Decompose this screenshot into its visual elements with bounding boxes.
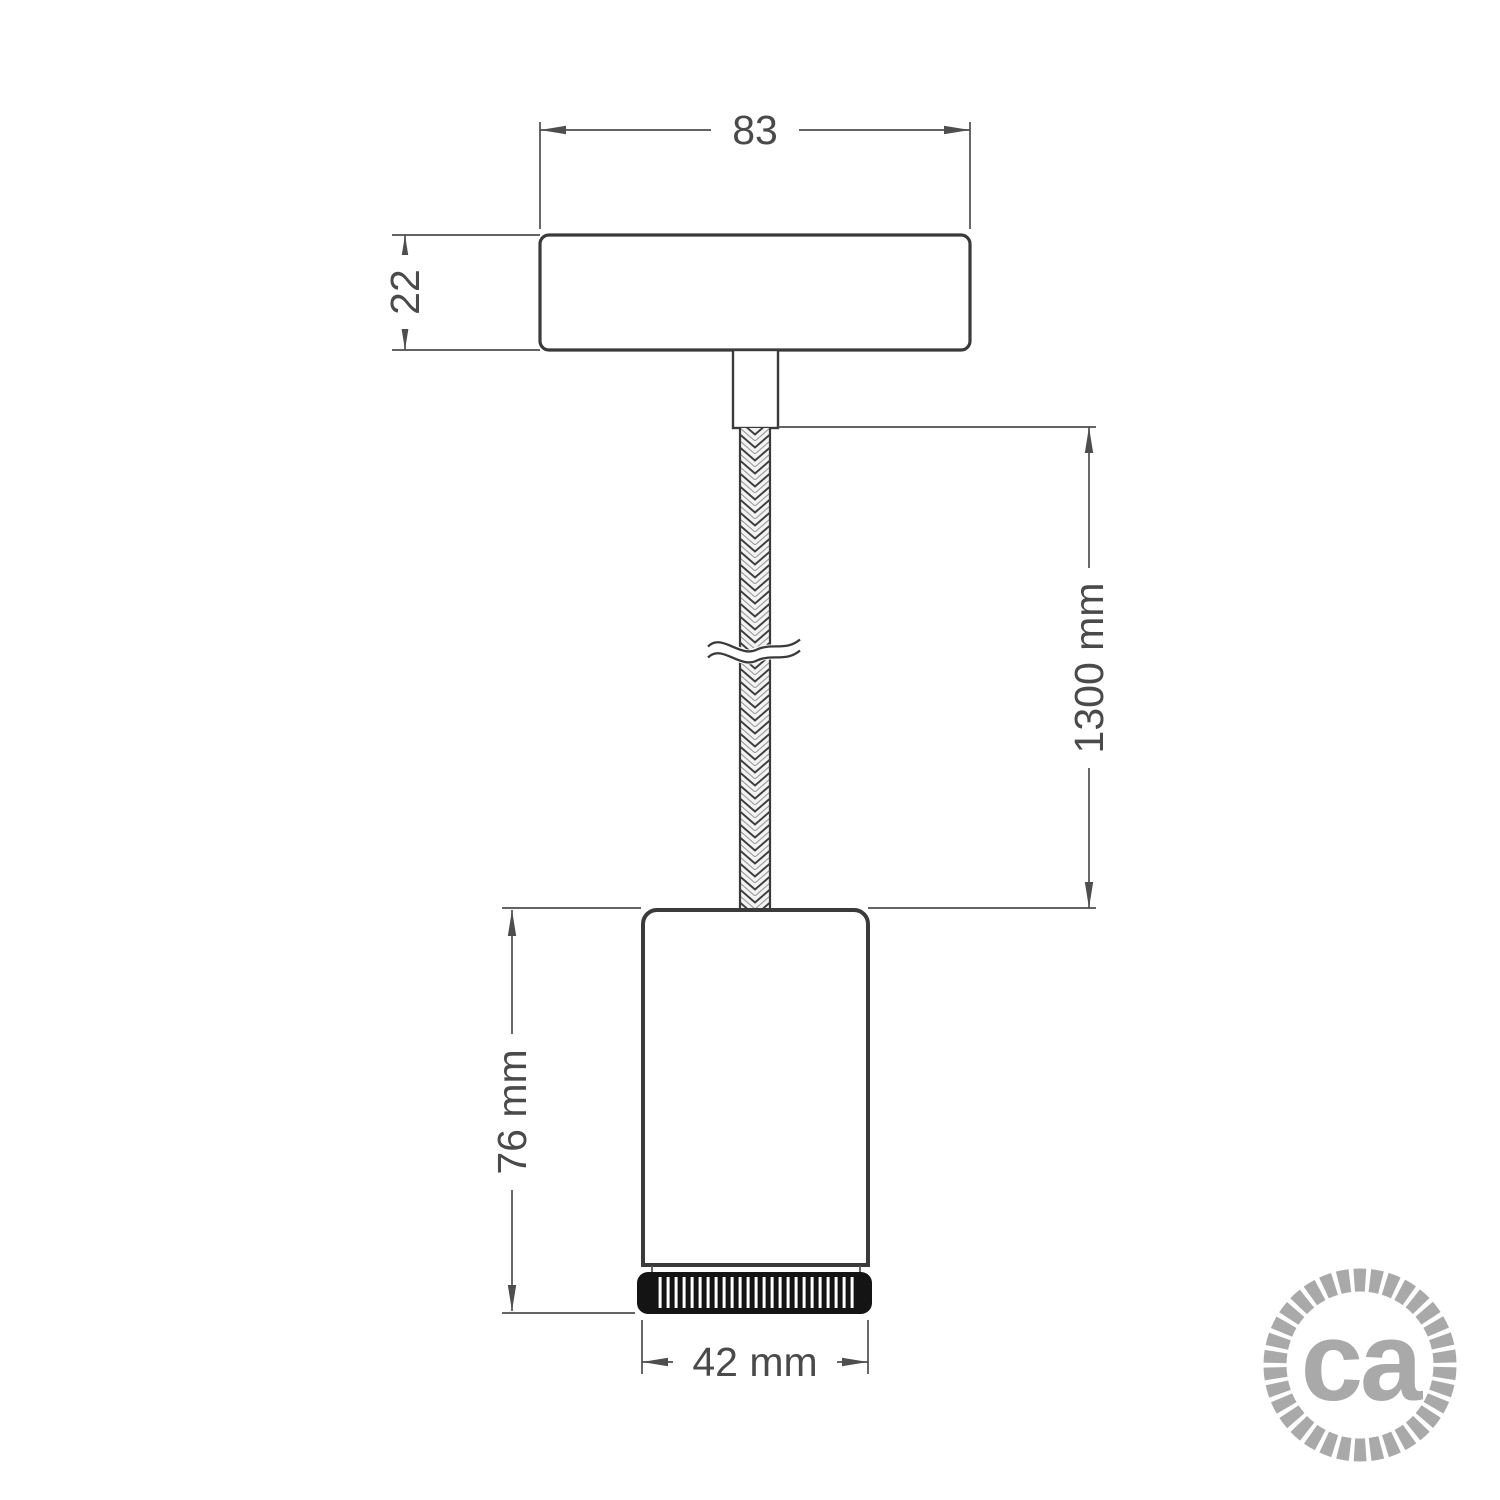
dim-cable-length-arrow-top — [1085, 427, 1093, 453]
dim-cable-length-extension-lines — [778, 427, 1096, 908]
dim-spot-diameter-arrow-left — [642, 1358, 668, 1366]
dim-canopy-width-arrow-left — [540, 126, 566, 134]
dim-spot-diameter: 42 mm — [642, 1320, 868, 1385]
spot-knurled-ring — [637, 1272, 872, 1314]
dim-canopy-width-arrow-right — [944, 126, 970, 134]
dim-spot-height-label: 76 mm — [489, 1049, 535, 1174]
cable-strain-relief — [733, 350, 778, 428]
dim-spot-height: 76 mm — [489, 908, 641, 1313]
drawing-page: 83 22 1300 mm — [0, 0, 1500, 1500]
dim-spot-height-arrow-bottom — [508, 1285, 516, 1311]
ceiling-canopy — [540, 235, 970, 350]
logo-text: ca — [1301, 1299, 1423, 1424]
dim-canopy-height: 22 — [382, 235, 540, 350]
technical-drawing-canvas: 83 22 1300 mm — [0, 0, 1500, 1500]
dim-cable-length: 1300 mm — [778, 427, 1112, 908]
dim-spot-diameter-label: 42 mm — [692, 1339, 817, 1385]
dim-spot-diameter-arrow-right — [842, 1358, 868, 1366]
spot-ring-ribs — [654, 1277, 856, 1308]
brand-logo: ca — [1259, 1264, 1461, 1466]
dim-canopy-width-label: 83 — [732, 107, 778, 153]
dim-canopy-height-label: 22 — [382, 269, 428, 315]
dim-cable-length-arrow-bottom — [1085, 882, 1093, 908]
spot-lamp-body — [643, 910, 868, 1265]
dim-spot-height-arrow-top — [508, 910, 516, 936]
braided-cable — [740, 428, 770, 910]
dim-canopy-width: 83 — [540, 107, 970, 229]
dim-cable-length-label: 1300 mm — [1066, 583, 1112, 754]
